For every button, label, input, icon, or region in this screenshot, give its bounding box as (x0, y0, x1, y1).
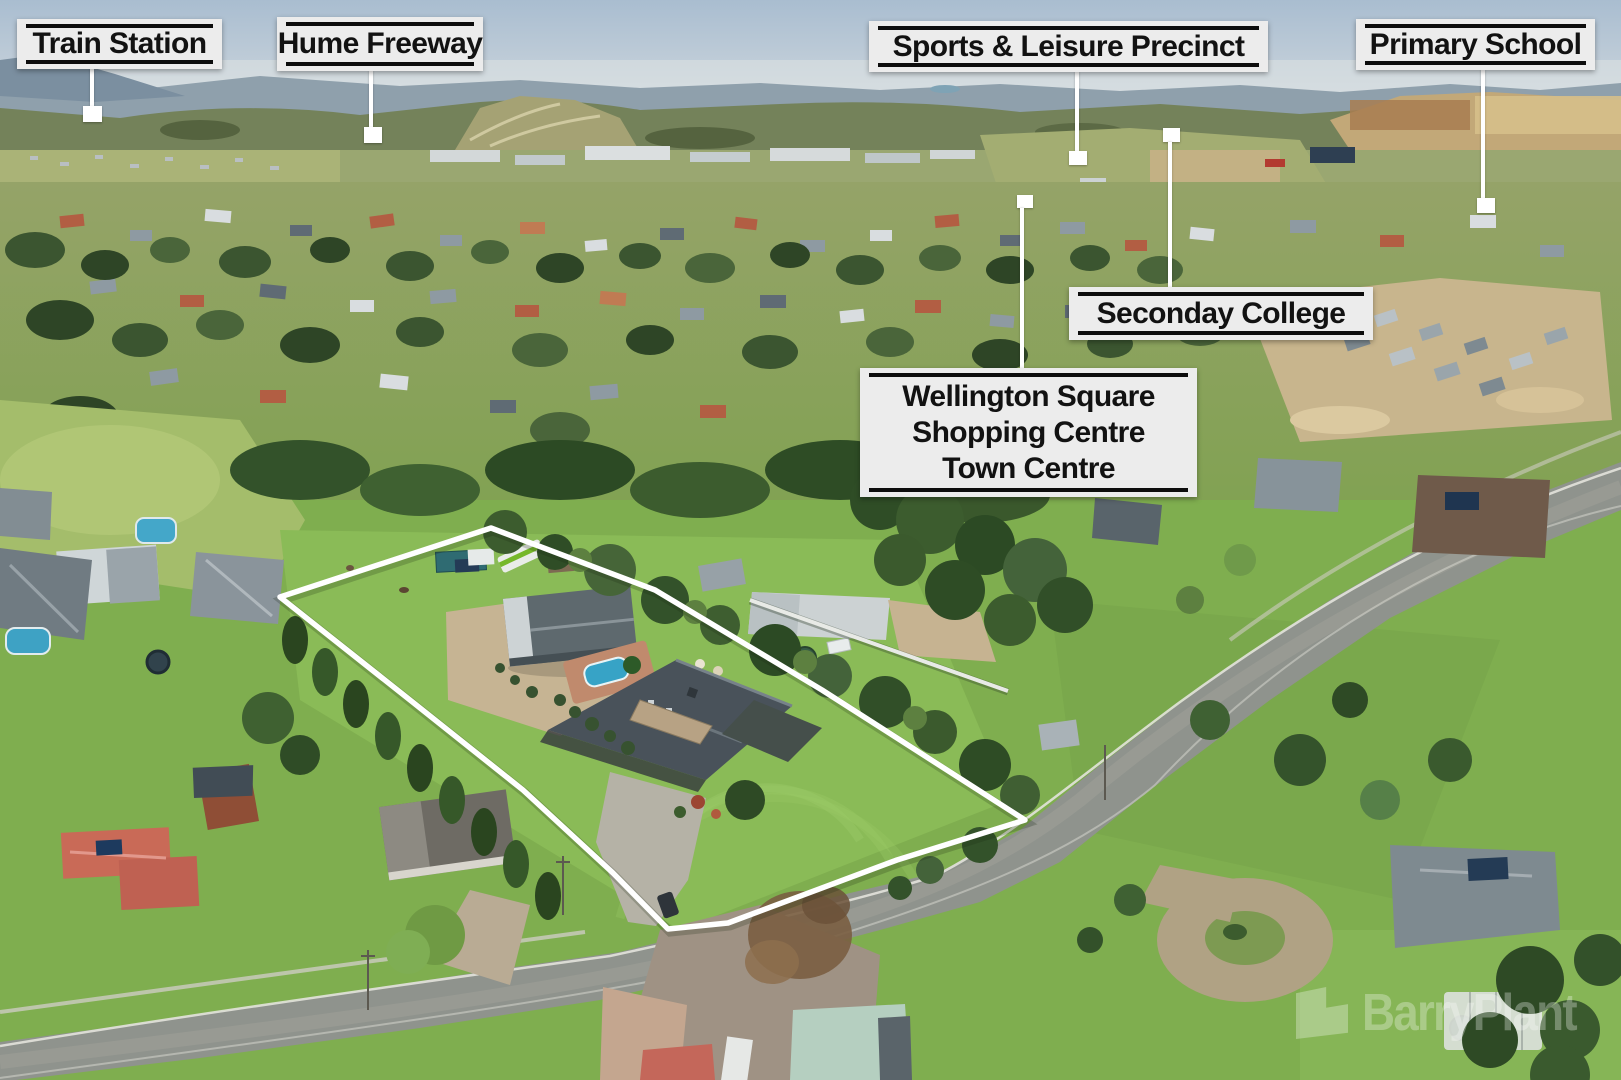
sports-leisure-marker (1069, 151, 1087, 165)
wellington-square-label-line1: Wellington Square (902, 379, 1155, 415)
hume-freeway-label-box: Hume Freeway (277, 17, 483, 71)
hume-freeway-pointer-line (369, 71, 373, 128)
aerial-scene (0, 0, 1621, 1080)
label-rule-bottom (1078, 331, 1364, 335)
sports-leisure-pointer-line (1075, 72, 1079, 152)
aerial-property-photo: Train Station Hume Freeway Sports & Leis… (0, 0, 1621, 1080)
hume-freeway-marker (364, 127, 382, 143)
primary-school-pointer-line (1481, 70, 1485, 199)
wellington-square-pointer-line (1020, 208, 1024, 368)
seconday-college-pointer-line (1168, 142, 1172, 287)
label-rule-bottom (869, 488, 1188, 492)
primary-school-marker (1477, 198, 1495, 213)
train-station-label-box: Train Station (17, 19, 222, 69)
train-station-label: Train Station (33, 26, 207, 62)
seconday-college-label-box: Seconday College (1069, 287, 1373, 340)
caravan (468, 548, 495, 565)
palm-tree (623, 656, 641, 674)
train-station-marker (83, 106, 102, 122)
wellington-square-marker (1017, 195, 1033, 208)
hume-freeway-label: Hume Freeway (278, 26, 483, 62)
label-rule-bottom (878, 63, 1259, 67)
primary-school-label-box: Primary School (1356, 19, 1595, 70)
sports-leisure-label: Sports & Leisure Precinct (893, 29, 1245, 65)
label-rule-bottom (1365, 61, 1586, 65)
primary-school-label: Primary School (1370, 27, 1582, 63)
sports-leisure-label-box: Sports & Leisure Precinct (869, 21, 1268, 72)
seconday-college-marker (1163, 128, 1180, 142)
wellington-square-label-line2: Shopping Centre (912, 415, 1145, 451)
wellington-square-label-line3: Town Centre (942, 451, 1115, 487)
train-station-pointer-line (90, 69, 94, 107)
label-rule-bottom (26, 60, 213, 64)
seconday-college-label: Seconday College (1097, 296, 1346, 332)
label-rule-bottom (286, 62, 474, 66)
wellington-square-label-box: Wellington Square Shopping Centre Town C… (860, 368, 1197, 497)
